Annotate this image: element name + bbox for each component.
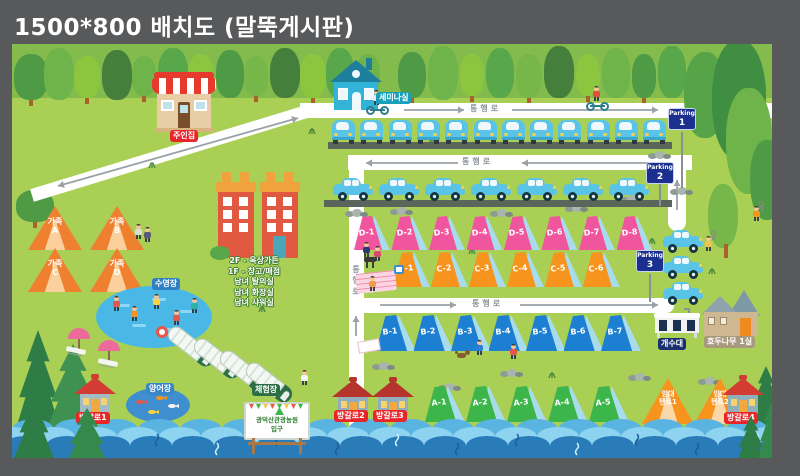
tree-trunk [724, 244, 728, 258]
decor [475, 140, 480, 144]
decor [419, 133, 423, 136]
tree [14, 54, 48, 100]
walnut-house [702, 290, 760, 338]
entrance-sign-line1: 광덕산관광농원 [246, 416, 308, 424]
tree [244, 56, 268, 96]
decor [692, 273, 695, 276]
decor [644, 140, 649, 144]
decor [168, 404, 176, 408]
parking-word: Parking [647, 163, 673, 172]
decor [436, 180, 443, 186]
decor [136, 400, 144, 404]
sink-station [654, 312, 700, 338]
decor [174, 321, 176, 325]
tent-D-6: D-6 [542, 216, 578, 250]
decor [682, 232, 689, 238]
decor [377, 140, 382, 144]
decor [619, 122, 632, 130]
decor [709, 247, 711, 251]
beach-umbrella-icon [68, 328, 90, 339]
decor [74, 377, 116, 394]
parking-1-post [681, 132, 683, 188]
decor [361, 140, 366, 144]
decor [192, 309, 194, 313]
dog [457, 350, 471, 359]
decor [154, 305, 156, 309]
decor [740, 318, 751, 336]
building-info-line: 1F - 창고/매점 [206, 267, 302, 278]
decor [132, 324, 146, 327]
parking-word: Parking [669, 109, 695, 118]
decor [511, 355, 513, 359]
fish-pond-label: 양어장 [146, 383, 174, 395]
decor [135, 317, 137, 321]
picnic-mat [357, 338, 381, 354]
decor [273, 236, 286, 258]
parking-number: 2 [647, 172, 673, 183]
decor [454, 195, 457, 198]
decor [399, 401, 405, 408]
tent-C-2: C-2 [431, 252, 468, 287]
parking-number: 3 [637, 260, 663, 271]
tent-label-bottom: A [52, 226, 58, 235]
decor [390, 180, 397, 186]
sign-leg [252, 438, 255, 454]
tent-label-bottom: C [52, 268, 58, 277]
decor [408, 195, 411, 198]
decor [582, 180, 589, 186]
badminton-player [752, 206, 760, 221]
decor [223, 223, 232, 232]
decor [476, 133, 480, 136]
decor [722, 378, 764, 395]
decor [620, 180, 627, 186]
decor [518, 133, 522, 136]
decor [391, 133, 395, 136]
pool-label: 수영장 [152, 278, 180, 290]
decor [446, 140, 451, 144]
decor [381, 401, 387, 408]
tent-label-bottom: D [114, 268, 121, 277]
decor [260, 182, 300, 192]
man-cyclist [592, 86, 600, 101]
car-front [444, 120, 469, 144]
bicycle-frame [590, 105, 605, 107]
decor [478, 122, 491, 130]
family-tent: 가족A [28, 206, 82, 250]
road-lower [362, 298, 674, 313]
tent-C-6: C-6 [583, 252, 620, 287]
decor [632, 140, 637, 144]
car-side [609, 178, 649, 202]
tent-C-5: C-5 [545, 252, 582, 287]
decor [305, 381, 307, 385]
decor [631, 133, 635, 136]
decor [749, 399, 755, 406]
decor [708, 317, 715, 325]
cooler-box [394, 265, 404, 274]
decor [239, 223, 248, 232]
tree [270, 48, 300, 98]
tent-A-5: A-5 [589, 386, 629, 422]
playing-kid [475, 340, 483, 355]
decor [415, 186, 418, 189]
decor [390, 140, 395, 144]
tent-B-1: B-1 [376, 315, 416, 351]
decor [682, 284, 689, 290]
decor [731, 399, 737, 406]
tree [428, 46, 458, 100]
decor [720, 317, 727, 325]
bbq-man [362, 242, 370, 257]
decor [571, 195, 574, 198]
decor [603, 133, 607, 136]
tree [632, 54, 656, 98]
walnut-room-label: 호두나무 1실 [704, 336, 755, 348]
decor [267, 197, 276, 206]
decor [699, 238, 702, 241]
decor [91, 374, 99, 379]
decor [405, 133, 409, 136]
playing-kid [509, 344, 517, 359]
decor [341, 401, 347, 408]
tent-A-4: A-4 [548, 386, 588, 422]
sink-station-label: 개수대 [658, 338, 686, 350]
decor [562, 122, 575, 130]
seminar-room-label: 세미나실 [376, 92, 411, 104]
decor [455, 351, 458, 354]
decor [239, 197, 248, 206]
decor [352, 180, 359, 186]
decor [638, 195, 641, 198]
decor [223, 197, 232, 206]
car-side [663, 256, 703, 280]
tent-label: 가족A [28, 217, 82, 235]
decor [157, 305, 159, 309]
car-front [557, 120, 582, 144]
decor [267, 210, 276, 219]
decor [660, 140, 665, 144]
decor [491, 140, 496, 144]
swimmer [152, 294, 160, 309]
decor [536, 180, 543, 186]
decor [528, 180, 535, 186]
decor [739, 375, 747, 380]
decor [418, 140, 423, 144]
tent-C-3: C-3 [469, 252, 506, 287]
decor [591, 122, 604, 130]
swimmer [190, 298, 198, 313]
decor [152, 78, 216, 94]
decor [421, 122, 434, 130]
decor [359, 401, 365, 408]
decor [599, 186, 602, 189]
decor [101, 398, 107, 405]
decor [370, 287, 372, 291]
decor [194, 100, 207, 111]
decor [547, 140, 552, 144]
decor [504, 133, 508, 136]
decor [216, 182, 256, 192]
decor [534, 122, 547, 130]
sitting-person [143, 227, 151, 242]
bungalow-3-label: 방갈로3 [373, 410, 407, 422]
decor [148, 410, 156, 414]
tent-label: D-8 [616, 226, 642, 238]
car-front [416, 120, 441, 144]
decor [465, 350, 470, 355]
tree [216, 50, 244, 98]
decor [628, 180, 635, 186]
car-front [473, 120, 498, 144]
tent-B-6: B-6 [564, 315, 604, 351]
decor [559, 140, 564, 144]
tent-A-2: A-2 [466, 386, 506, 422]
car-front [642, 120, 667, 144]
building-info-line: 남녀 샤워실 [206, 298, 302, 309]
grill-leg [372, 262, 374, 268]
decor [145, 238, 147, 242]
decor [433, 195, 436, 198]
decor [553, 186, 556, 189]
car-side [663, 230, 703, 254]
tree [102, 50, 132, 100]
decor [336, 122, 349, 130]
parking-word: Parking [637, 251, 663, 260]
decor [671, 299, 674, 302]
waving-person [300, 370, 308, 385]
decor [645, 186, 648, 189]
decor [378, 257, 380, 261]
decor [223, 210, 232, 219]
decor [674, 284, 681, 290]
decor [692, 247, 695, 250]
decor [161, 100, 174, 111]
decor [369, 186, 372, 189]
tent-label: D-2 [391, 226, 417, 238]
tent-label: D-4 [466, 226, 492, 238]
car-front [501, 120, 526, 144]
experience-zone-label: 체험장 [252, 384, 280, 396]
car-side [333, 178, 373, 202]
tent-D-3: D-3 [429, 216, 465, 250]
tent-label-top: 가족 [48, 259, 63, 268]
decor [647, 122, 660, 130]
decor [333, 140, 338, 144]
decor [514, 355, 516, 359]
tent-A-3: A-3 [507, 386, 547, 422]
car-front [388, 120, 413, 144]
tent-label: 임대텐트1 [642, 390, 694, 406]
tree [486, 48, 514, 98]
tent-B-7: B-7 [601, 315, 641, 351]
decor [136, 235, 138, 239]
decor [352, 70, 360, 78]
badminton-player [704, 236, 712, 251]
decor [506, 122, 519, 130]
decor [754, 217, 756, 221]
parking-3-post [649, 274, 651, 302]
decor [334, 133, 338, 136]
tree [300, 54, 326, 98]
bicycle-frame [370, 109, 385, 111]
decor [589, 133, 593, 136]
picnic-blanket [355, 270, 397, 294]
decor [406, 140, 411, 144]
decor [267, 223, 276, 232]
tree [74, 56, 100, 98]
decor [444, 180, 451, 186]
decor [706, 247, 708, 251]
decor [592, 195, 595, 198]
bungalow [722, 378, 764, 416]
family-tent: 가족C [28, 248, 82, 292]
decor [673, 320, 681, 331]
swimmer [172, 310, 180, 325]
tent-D-4: D-4 [467, 216, 503, 250]
river [12, 418, 772, 458]
campground-map: 통행로 통행로 통행로 통행로 Parking 1 Parking 2 Park… [12, 44, 772, 458]
decor [449, 122, 462, 130]
tent-B-2: B-2 [414, 315, 454, 351]
decor [462, 140, 467, 144]
decor [507, 186, 510, 189]
lounger [98, 358, 119, 367]
tent-B-5: B-5 [526, 315, 566, 351]
decor [398, 180, 405, 186]
car-side [425, 178, 465, 202]
tree [516, 54, 542, 98]
decor [692, 299, 695, 302]
tree [460, 54, 484, 96]
poster: 1500*800 배치도 (말뚝게시판) 통행로 통행로 통행로 통행로 Par… [0, 0, 800, 476]
decor [283, 223, 292, 232]
swimmer [112, 296, 120, 311]
decor [674, 258, 681, 264]
decor [434, 140, 439, 144]
decor [344, 180, 351, 186]
decor [283, 197, 292, 206]
building-info-line: 2F - 옥상가든 [206, 256, 302, 267]
car-front [614, 120, 639, 144]
decor [156, 396, 164, 400]
bungalow-2-label: 방갈로2 [334, 410, 368, 422]
decor [83, 398, 89, 405]
decor [393, 122, 406, 130]
tent-D-2: D-2 [392, 216, 428, 250]
tent-label-top: 가족 [48, 217, 63, 226]
decor [387, 195, 390, 198]
sign-crossbar [248, 442, 306, 445]
entrance-sign-line2: 입구 [246, 425, 308, 433]
decor [757, 217, 759, 221]
decor [364, 122, 377, 130]
parking-2-post [659, 184, 661, 206]
car-side [471, 178, 511, 202]
decor [195, 309, 197, 313]
car-side [379, 178, 419, 202]
page-title: 1500*800 배치도 (말뚝게시판) [14, 8, 354, 42]
decor [372, 380, 414, 397]
decor [546, 195, 549, 198]
decor [338, 88, 348, 100]
building-info-line: 남녀 탈의실 [206, 277, 302, 288]
beach-umbrella-icon [98, 340, 120, 351]
tree [44, 48, 74, 100]
decor [352, 92, 361, 110]
swimmer [130, 306, 138, 321]
decor [574, 180, 581, 186]
facility-building-info: 2F - 옥상가든 1F - 창고/매점 남녀 탈의실 남녀 화장실 남녀 샤워… [206, 256, 302, 309]
decor [139, 235, 141, 239]
tree [544, 46, 574, 98]
tent-label-bottom: 텐트1 [659, 398, 677, 406]
parking-2-sign: Parking 2 [646, 162, 674, 184]
owner-house [152, 72, 216, 132]
decor [239, 210, 248, 219]
decor [373, 287, 375, 291]
decor [177, 321, 179, 325]
decor [604, 140, 609, 144]
decor [674, 232, 681, 238]
parking-3-sign: Parking 3 [636, 250, 664, 272]
decor [348, 133, 352, 136]
decor [503, 140, 508, 144]
facility-building [216, 172, 300, 258]
decor [91, 399, 99, 413]
parking-number: 1 [669, 118, 695, 129]
road-label-lower: 통행로 [472, 298, 503, 309]
decor [617, 133, 621, 136]
decor [114, 307, 116, 311]
decor [180, 105, 188, 113]
tent-D-8: D-8 [617, 216, 653, 250]
decor [616, 140, 621, 144]
decor [433, 133, 437, 136]
decor [349, 140, 354, 144]
family-tent: 가족D [90, 248, 144, 292]
decor [479, 195, 482, 198]
tree [658, 46, 686, 98]
tent-D-1: D-1 [354, 216, 390, 250]
decor [519, 140, 524, 144]
car-side [663, 282, 703, 306]
decor [477, 351, 479, 355]
decor [687, 320, 695, 331]
decor [332, 380, 374, 397]
tent-D-7: D-7 [579, 216, 615, 250]
tent-A-1: A-1 [425, 386, 465, 422]
decor [341, 195, 344, 198]
decor [362, 195, 365, 198]
tent-C-4: C-4 [507, 252, 544, 287]
decor [490, 180, 497, 186]
building-info-line: 남녀 화장실 [206, 288, 302, 299]
tent-B-3: B-3 [451, 315, 491, 351]
decor [525, 195, 528, 198]
parking-1-sign: Parking 1 [668, 108, 696, 130]
grill-leg [366, 262, 368, 268]
tent-label: D-6 [541, 226, 567, 238]
owner-house-label: 주인집 [170, 130, 198, 142]
road-label-top: 통행로 [470, 103, 501, 114]
tent-label-top: 가족 [110, 217, 125, 226]
tent-label-bottom: B [114, 226, 120, 235]
decor [594, 97, 596, 101]
car-front [529, 120, 554, 144]
decor [575, 140, 580, 144]
tent-D-5: D-5 [504, 216, 540, 250]
